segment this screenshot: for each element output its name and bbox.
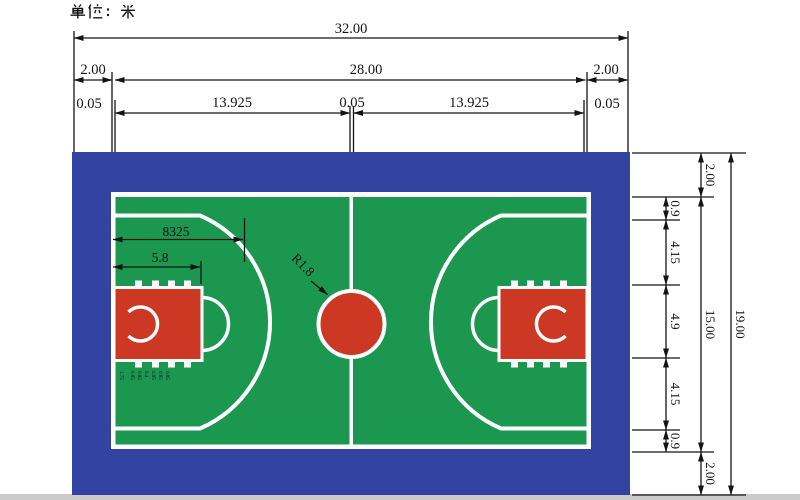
dim-court-length-label: 28.00 — [350, 62, 383, 78]
dim-half-right-label: 13.925 — [449, 95, 489, 111]
lane-hash-tick — [135, 361, 142, 368]
dim-half-left-label: 13.925 — [212, 95, 252, 111]
dim-seg5-label: 0.9 — [668, 433, 683, 449]
key-right — [499, 288, 587, 361]
dim-left-margin-label: 2.00 — [80, 62, 105, 78]
lane-hash-tick — [184, 281, 191, 288]
lane-hash-tick — [511, 361, 518, 368]
lane-hash-tick — [152, 361, 159, 368]
lane-hash-tick — [527, 361, 534, 368]
dim-key-length-label: 5.8 — [152, 250, 169, 265]
dim-overall-length-label: 32.00 — [335, 21, 368, 37]
lane-hash-tick — [527, 281, 534, 288]
lane-hash-tick — [560, 361, 567, 368]
dim-top-margin-label: 2.00 — [703, 164, 718, 187]
dim-seg2-label: 4.15 — [668, 241, 683, 264]
dim-seg1-label: 0.9 — [668, 200, 683, 216]
lane-mark-label: 0.85 — [129, 371, 134, 380]
dim-seg3-label: 4.9 — [668, 313, 683, 329]
lane-mark-label: 0.85 — [136, 371, 141, 380]
basketball-court-dimension-drawing: 32.00 2.00 28.00 2.00 0.05 13.925 0.05 1… — [0, 0, 800, 500]
lane-mark-label: 0.4 — [143, 371, 148, 378]
drawing-canvas: 32.00 2.00 28.00 2.00 0.05 13.925 0.05 1… — [0, 0, 800, 500]
dim-seg4-label: 4.15 — [668, 383, 683, 406]
lane-hash-tick — [184, 361, 191, 368]
dim-bottom-margin-label: 2.00 — [703, 462, 718, 485]
lane-mark-label: 1.75 — [118, 371, 123, 380]
lane-mark-label: 0.85 — [164, 371, 169, 380]
lane-hash-tick — [560, 281, 567, 288]
dim-court-width-label: 15.00 — [703, 310, 718, 339]
court — [72, 152, 630, 495]
dim-line-width-left-label: 0.05 — [76, 96, 101, 112]
dim-arc-depth-label: 8325 — [163, 224, 190, 239]
dim-line-width-right-label: 0.05 — [594, 96, 619, 112]
lane-hash-tick — [543, 281, 550, 288]
lane-hash-tick — [543, 361, 550, 368]
dim-line-width-center-label: 0.05 — [339, 95, 364, 111]
lane-mark-label: 0.85 — [150, 371, 155, 380]
dim-overall-width-label: 19.00 — [733, 309, 748, 338]
lane-hash-tick — [152, 281, 159, 288]
lane-mark-label: 0.85 — [157, 371, 162, 380]
lane-hash-tick — [511, 281, 518, 288]
center-circle — [319, 291, 385, 357]
lane-hash-tick — [168, 281, 175, 288]
dim-right-margin-label: 2.00 — [593, 62, 618, 78]
lane-hash-tick — [168, 361, 175, 368]
lane-hash-tick — [135, 281, 142, 288]
